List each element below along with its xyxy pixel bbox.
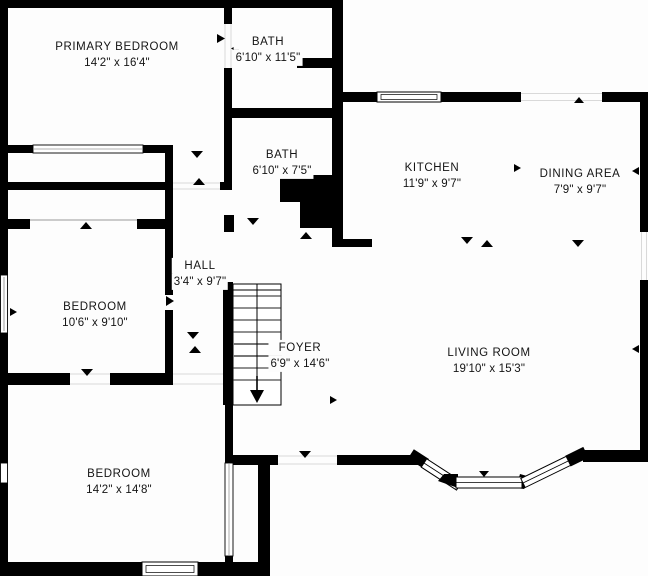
room-label-living-room: LIVING ROOM 19'10" x 15'3" [445, 345, 532, 377]
bay-window [408, 447, 589, 490]
chimney-block-lower [300, 202, 332, 228]
room-name: HALL [172, 258, 228, 274]
bottom-window [142, 562, 198, 576]
room-name: BEDROOM [84, 466, 154, 482]
room-label-dining-area: DINING AREA 7'9" x 9'7" [538, 166, 623, 198]
room-name: BEDROOM [60, 299, 130, 315]
room-dims: 6'10" x 7'5" [250, 163, 313, 179]
room-name: KITCHEN [401, 160, 463, 176]
room-dims: 19'10" x 15'3" [445, 361, 532, 377]
room-name: FOYER [268, 340, 331, 356]
room-dims: 14'2" x 16'4" [53, 55, 181, 71]
room-dims: 11'9" x 9'7" [401, 176, 463, 192]
room-label-bath-top: BATH 6'10" x 11'5" [234, 34, 303, 66]
bedroom-left-window-2 [1, 463, 8, 483]
room-label-foyer: FOYER 6'9" x 14'6" [268, 340, 331, 372]
room-label-hall: HALL 3'4" x 9'7" [172, 258, 228, 290]
room-label-primary-bedroom: PRIMARY BEDROOM 14'2" x 16'4" [53, 39, 181, 71]
window-markers [1, 92, 442, 576]
room-dims: 7'9" x 9'7" [538, 182, 623, 198]
room-dims: 6'9" x 14'6" [268, 356, 331, 372]
room-dims: 3'4" x 9'7" [172, 274, 228, 290]
floorplan: PRIMARY BEDROOM 14'2" x 16'4" BATH 6'10"… [0, 0, 648, 576]
room-dims: 14'2" x 14'8" [84, 482, 154, 498]
room-label-bath-middle: BATH 6'10" x 7'5" [250, 147, 313, 179]
room-label-bedroom-middle: BEDROOM 10'6" x 9'10" [60, 299, 130, 331]
room-label-kitchen: KITCHEN 11'9" x 9'7" [401, 160, 463, 192]
room-dims: 10'6" x 9'10" [60, 315, 130, 331]
room-name: PRIMARY BEDROOM [53, 39, 181, 55]
room-label-bedroom-bottom: BEDROOM 14'2" x 14'8" [84, 466, 154, 498]
room-name: BATH [250, 147, 313, 163]
room-name: LIVING ROOM [445, 345, 532, 361]
room-name: DINING AREA [538, 166, 623, 182]
room-dims: 6'10" x 11'5" [234, 50, 303, 66]
room-name: BATH [234, 34, 303, 50]
front-door-arrow [299, 451, 311, 458]
